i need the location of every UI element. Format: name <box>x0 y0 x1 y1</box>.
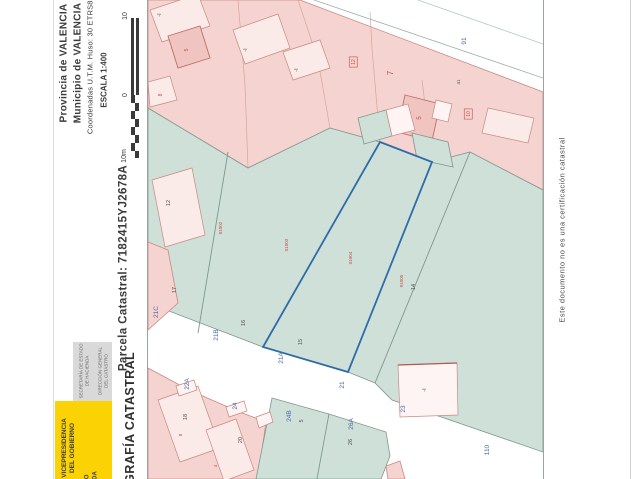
direction-line2: DEL CATASTRO <box>103 347 109 395</box>
scalebar-check-column <box>135 95 139 158</box>
small-parcel-polygon <box>386 461 405 479</box>
scale-label: ESCALA 1:400 <box>99 52 108 107</box>
map-label: 26A <box>348 418 355 430</box>
map-label: 01005 <box>399 274 404 287</box>
secretary-line2: DE HACIENDA <box>84 343 90 398</box>
map-label: 16 <box>241 320 247 326</box>
map-label: 17 <box>172 287 178 293</box>
cadastral-map: 9121C21B21A212311022A2424B26A75581210010… <box>148 0 543 479</box>
government-line2: DEL GOBIERNO <box>69 418 77 478</box>
scalebar-solid-segment <box>131 18 139 95</box>
map-label: -I <box>157 13 163 17</box>
map-label: 22A <box>184 378 191 390</box>
document-right-edge <box>630 0 631 479</box>
cadastral-document-page: Provincia de VALENCIA Municipio de VALEN… <box>0 0 640 479</box>
map-label: 12 <box>166 200 172 206</box>
map-label: 12 <box>351 59 357 65</box>
direction-line1: DIRECCIÓN GENERAL <box>97 347 103 395</box>
secretary-line1: SECRETARÍA DE ESTADO <box>78 343 84 398</box>
map-label: 24 <box>232 402 239 410</box>
map-label: 41 <box>456 79 461 85</box>
map-label: 23 <box>400 405 407 413</box>
municipality-label: Municipio de VALENCIA <box>72 3 84 124</box>
map-label: 15 <box>298 339 304 345</box>
map-label: 5 <box>184 48 190 51</box>
map-label: 91 <box>461 37 468 45</box>
disclaimer-text: Este documento no es una certificación c… <box>559 137 568 322</box>
document-title: CARTOGRAFÍA CATASTRAL <box>123 352 137 479</box>
map-label: -I <box>243 48 249 52</box>
map-label: 01003 <box>284 238 289 251</box>
scalebar-divided-segment <box>131 95 139 158</box>
map-label: 21A <box>278 352 285 364</box>
map-label: -I <box>294 68 300 72</box>
map-label: 20 <box>238 437 244 443</box>
ministry-line1: MINISTERIO <box>85 471 93 479</box>
map-label: -I <box>422 388 428 392</box>
document-left-edge <box>53 0 54 479</box>
map-label: 7 <box>386 70 395 75</box>
map-label: 8 <box>158 93 164 96</box>
map-label: 01002 <box>218 221 223 234</box>
map-label: 110 <box>484 444 491 455</box>
ministry-line2: DE HACIENDA <box>92 471 100 479</box>
map-label: 21B <box>213 329 220 341</box>
province-label: Provincia de VALENCIA <box>58 4 70 123</box>
government-line1: VICEPRESIDENCIA <box>61 418 69 478</box>
map-label: 01004 <box>348 251 353 264</box>
street-curb-line <box>418 0 543 44</box>
utm-coordinates-label: Coordenadas U.T.M. Huso: 30 ETRS89 <box>87 0 96 134</box>
map-label: 18 <box>183 414 189 420</box>
map-label: 21 <box>339 381 346 389</box>
building-polygon <box>398 363 458 417</box>
map-label: 5 <box>299 419 305 422</box>
building-polygon <box>432 100 452 122</box>
map-label: 21C <box>153 306 160 318</box>
scalebar-zero-label: 0 <box>122 93 130 97</box>
parcel-reference-label: Parcela Catastral: 7182415YJ2678A <box>117 165 130 371</box>
map-label: 14 <box>411 284 417 290</box>
map-label: 26 <box>348 439 354 445</box>
map-frame-right <box>543 0 544 479</box>
map-label: 10 <box>466 111 472 117</box>
scalebar-top-label: 10 <box>122 12 130 20</box>
green-parcel-polygon <box>256 398 329 479</box>
scalebar-bottom-label: 10m <box>121 149 129 163</box>
map-label: 24B <box>286 410 293 422</box>
